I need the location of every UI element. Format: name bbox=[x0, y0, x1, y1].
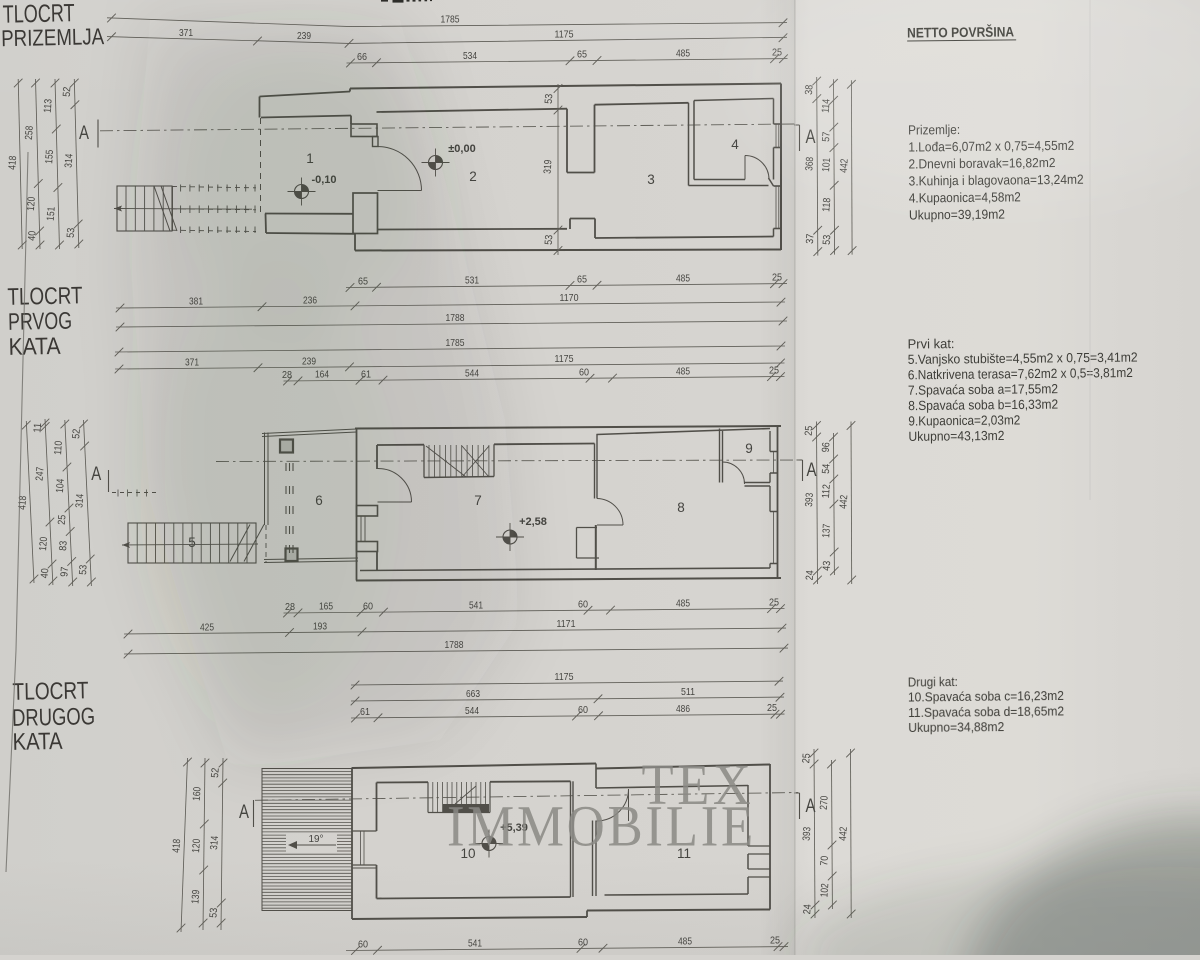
svg-text:53: 53 bbox=[544, 93, 556, 104]
svg-text:52: 52 bbox=[62, 86, 74, 97]
svg-text:Prvi kat:: Prvi kat: bbox=[907, 336, 954, 351]
svg-text:KATA: KATA bbox=[8, 333, 61, 361]
svg-text:PRIZEMLJA: PRIZEMLJA bbox=[1, 23, 105, 51]
svg-text:418: 418 bbox=[171, 838, 183, 853]
svg-text:485: 485 bbox=[676, 598, 690, 609]
svg-text:102: 102 bbox=[819, 883, 831, 898]
svg-text:40: 40 bbox=[27, 230, 39, 241]
svg-text:1175: 1175 bbox=[555, 354, 574, 365]
svg-text:486: 486 bbox=[676, 704, 690, 715]
svg-text:60: 60 bbox=[358, 939, 368, 950]
svg-text:113: 113 bbox=[43, 98, 55, 113]
svg-text:Ukupno=34,88m2: Ukupno=34,88m2 bbox=[908, 719, 1004, 735]
svg-text:314: 314 bbox=[209, 835, 221, 850]
svg-text:112: 112 bbox=[821, 484, 833, 499]
svg-text:319: 319 bbox=[543, 159, 555, 174]
svg-text:3: 3 bbox=[647, 172, 655, 187]
svg-text:24: 24 bbox=[802, 904, 814, 915]
svg-text:485: 485 bbox=[676, 366, 690, 377]
svg-text:485: 485 bbox=[676, 49, 690, 60]
svg-text:53: 53 bbox=[544, 234, 556, 245]
svg-text:37: 37 bbox=[805, 233, 817, 244]
svg-text:53: 53 bbox=[66, 227, 78, 238]
svg-text:24: 24 bbox=[805, 570, 817, 581]
svg-text:442: 442 bbox=[838, 826, 850, 841]
svg-text:KATA: KATA bbox=[12, 728, 63, 756]
svg-text:65: 65 bbox=[577, 50, 587, 61]
svg-text:25: 25 bbox=[57, 514, 69, 525]
svg-text:1170: 1170 bbox=[560, 293, 579, 304]
svg-text:160: 160 bbox=[192, 786, 204, 801]
svg-text:139: 139 bbox=[190, 889, 202, 904]
svg-text:+2,58: +2,58 bbox=[519, 516, 547, 528]
svg-text:Ukupno=39,19m2: Ukupno=39,19m2 bbox=[909, 207, 1005, 223]
svg-text:534: 534 bbox=[463, 51, 477, 62]
svg-text:±0,00: ±0,00 bbox=[448, 143, 475, 155]
svg-text:314: 314 bbox=[64, 153, 76, 168]
svg-text:485: 485 bbox=[678, 937, 692, 948]
svg-text:11: 11 bbox=[32, 422, 44, 433]
svg-text:4: 4 bbox=[731, 137, 739, 152]
svg-text:43: 43 bbox=[822, 560, 834, 571]
svg-text:9.Kupaonica=2,03m2: 9.Kupaonica=2,03m2 bbox=[908, 412, 1020, 428]
svg-text:PRVOG: PRVOG bbox=[8, 308, 73, 336]
svg-text:1171: 1171 bbox=[557, 619, 576, 630]
svg-text:258: 258 bbox=[24, 125, 36, 140]
svg-text:485: 485 bbox=[676, 274, 690, 285]
svg-text:1785: 1785 bbox=[441, 15, 460, 26]
svg-text:1175: 1175 bbox=[555, 672, 574, 683]
svg-text:52: 52 bbox=[71, 428, 83, 439]
svg-text:54: 54 bbox=[821, 463, 833, 474]
svg-text:9: 9 bbox=[745, 441, 753, 456]
svg-text:104: 104 bbox=[55, 478, 67, 493]
svg-text:53: 53 bbox=[208, 907, 220, 918]
svg-text:7.Spavaća soba a=17,55m2: 7.Spavaća soba a=17,55m2 bbox=[908, 381, 1058, 398]
svg-text:118: 118 bbox=[821, 197, 833, 212]
svg-text:A: A bbox=[807, 460, 817, 481]
svg-text:A: A bbox=[91, 464, 101, 485]
svg-text:270: 270 bbox=[819, 795, 831, 810]
svg-text:A: A bbox=[79, 123, 89, 144]
svg-text:1175: 1175 bbox=[555, 30, 574, 41]
svg-text:247: 247 bbox=[35, 466, 47, 481]
svg-text:8: 8 bbox=[677, 500, 685, 515]
svg-text:52: 52 bbox=[210, 767, 222, 778]
svg-text:10.Spavaća soba c=16,23m2: 10.Spavaća soba c=16,23m2 bbox=[908, 688, 1064, 705]
svg-text:544: 544 bbox=[465, 706, 479, 717]
svg-text:2: 2 bbox=[469, 169, 477, 184]
svg-text:511: 511 bbox=[681, 687, 695, 698]
svg-text:393: 393 bbox=[802, 826, 814, 841]
svg-text:8.Spavaća soba b=16,33m2: 8.Spavaća soba b=16,33m2 bbox=[908, 397, 1058, 414]
svg-text:53: 53 bbox=[822, 234, 834, 245]
svg-text:120: 120 bbox=[26, 196, 38, 211]
svg-text:A: A bbox=[239, 802, 249, 823]
svg-text:393: 393 bbox=[804, 492, 816, 507]
svg-text:Ukupno=43,13m2: Ukupno=43,13m2 bbox=[908, 428, 1004, 444]
svg-text:541: 541 bbox=[468, 938, 482, 949]
svg-text:40: 40 bbox=[40, 568, 52, 579]
svg-text:120: 120 bbox=[38, 536, 50, 551]
svg-text:6.Natkrivena terasa=7,62m2 x 0: 6.Natkrivena terasa=7,62m2 x 0,5=3,81m2 bbox=[908, 365, 1133, 382]
svg-text:25: 25 bbox=[801, 753, 813, 764]
svg-text:96: 96 bbox=[821, 442, 833, 453]
svg-text:IMMOBILIE: IMMOBILIE bbox=[447, 794, 756, 859]
svg-text:97: 97 bbox=[59, 566, 71, 577]
svg-text:151: 151 bbox=[46, 206, 58, 221]
svg-text:53: 53 bbox=[78, 564, 90, 575]
svg-text:120: 120 bbox=[191, 838, 203, 853]
svg-text:418: 418 bbox=[7, 155, 19, 170]
svg-text:A: A bbox=[806, 796, 816, 817]
svg-text:110: 110 bbox=[53, 440, 65, 455]
svg-text:TLOCRT: TLOCRT bbox=[12, 677, 89, 706]
svg-text:25: 25 bbox=[804, 425, 816, 436]
svg-text:442: 442 bbox=[838, 494, 850, 509]
svg-text:60: 60 bbox=[579, 367, 589, 378]
svg-text:155: 155 bbox=[44, 149, 56, 164]
svg-text:11.Spavaća soba d=18,65m2: 11.Spavaća soba d=18,65m2 bbox=[908, 703, 1064, 720]
svg-text:314: 314 bbox=[74, 493, 86, 508]
svg-text:60: 60 bbox=[578, 599, 588, 610]
svg-text:Drugi kat:: Drugi kat: bbox=[908, 674, 958, 690]
svg-text:65: 65 bbox=[577, 274, 587, 285]
svg-text:60: 60 bbox=[578, 937, 588, 948]
svg-text:83: 83 bbox=[58, 540, 70, 551]
svg-text:137: 137 bbox=[821, 523, 833, 538]
svg-text:60: 60 bbox=[578, 705, 588, 716]
svg-text:70: 70 bbox=[819, 855, 831, 866]
svg-text:19°: 19° bbox=[308, 834, 323, 845]
